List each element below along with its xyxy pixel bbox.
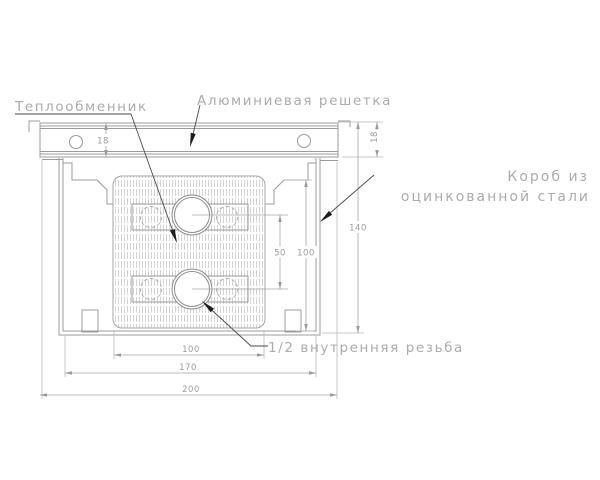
dim-pipe-spacing: 50 (274, 249, 286, 259)
convector-section-drawing: 18 18 140 100 50 100 170 200 Теплообменн… (0, 0, 600, 480)
dim-inner-height: 100 (297, 249, 315, 259)
label-thread: 1/2 внутренняя резьба (268, 340, 464, 356)
box-foot-left (82, 310, 98, 332)
dim-exchanger-width: 100 (182, 345, 200, 355)
dim-total-height: 140 (349, 224, 367, 234)
label-grille: Алюминиевая решетка (197, 93, 392, 109)
grille-hole-right (298, 135, 311, 148)
label-box-line2: оцинкованной стали (401, 189, 590, 205)
aluminum-grille (29, 121, 350, 157)
grille-end-hook-left (29, 121, 40, 132)
dim-grille-width: 200 (182, 385, 200, 395)
box-foot-right (285, 310, 301, 332)
dim-box-width: 170 (179, 363, 197, 373)
label-heat-exchanger: Теплообменник (14, 99, 148, 115)
dim-grille-height-right: 18 (370, 131, 380, 143)
label-box-line1: Короб из (507, 169, 589, 185)
heat-exchanger (113, 176, 288, 328)
drawing-canvas: 18 18 140 100 50 100 170 200 Теплообменн… (0, 0, 600, 480)
grille-hole-left (70, 136, 83, 149)
labels: Теплообменник Алюминиевая решетка Короб … (14, 93, 590, 356)
dim-grille-height-left: 18 (97, 137, 109, 147)
